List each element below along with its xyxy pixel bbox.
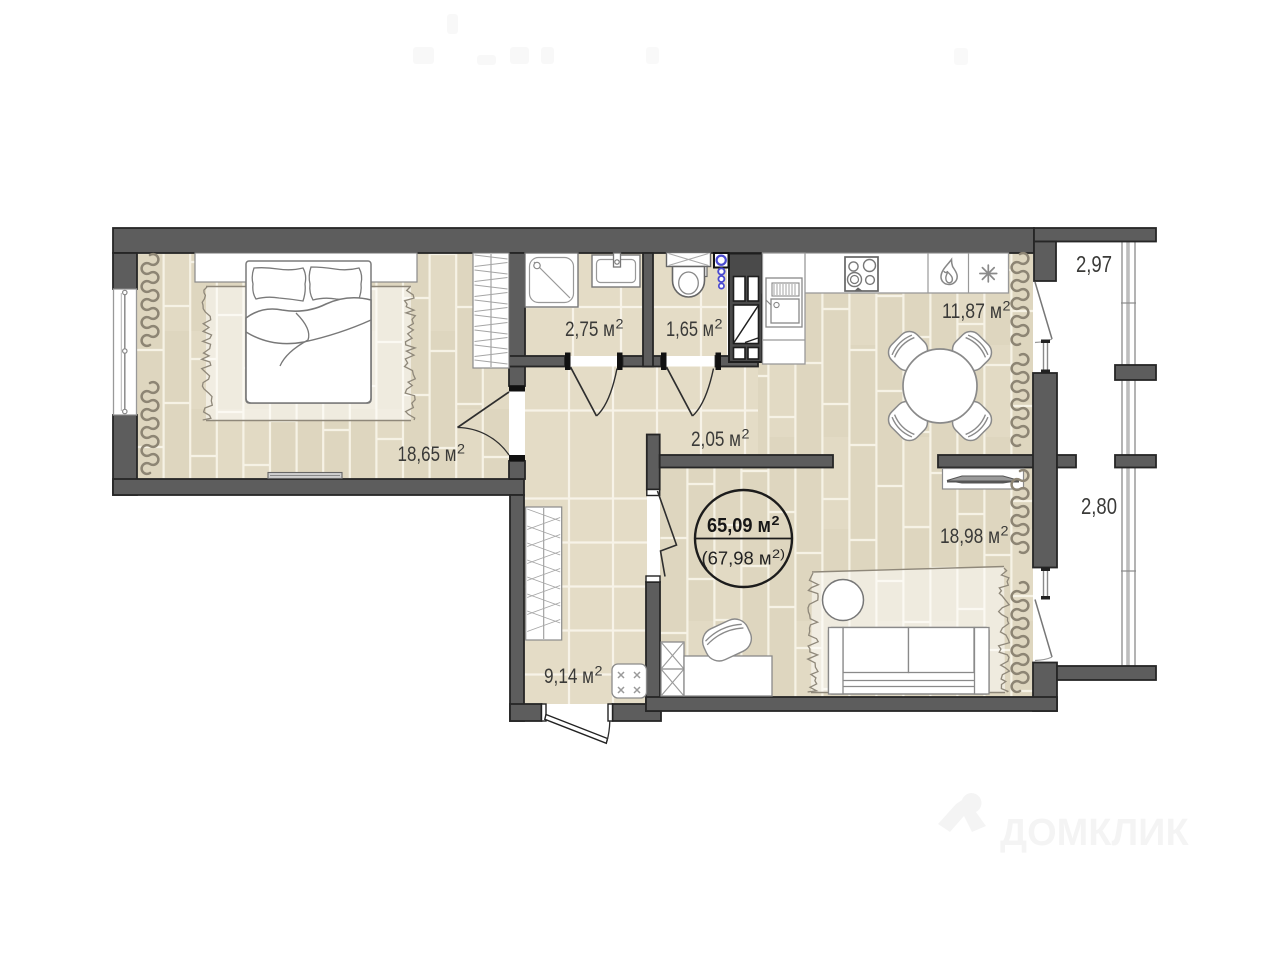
svg-text:(67,98 м: (67,98 м: [702, 548, 772, 569]
svg-text:2: 2: [1003, 298, 1011, 314]
svg-text:2,05 м: 2,05 м: [691, 428, 741, 451]
svg-text:2,80: 2,80: [1081, 493, 1117, 519]
svg-text:2,75 м: 2,75 м: [565, 318, 615, 341]
svg-text:2: 2: [772, 513, 780, 528]
svg-text:2: 2: [742, 426, 750, 442]
svg-text:18,98 м: 18,98 м: [940, 525, 1000, 548]
svg-text:2: 2: [616, 316, 624, 332]
svg-text:11,87 м: 11,87 м: [942, 300, 1002, 323]
svg-text:2: 2: [457, 441, 465, 457]
svg-text:2: 2: [1001, 523, 1009, 539]
svg-text:9,14 м: 9,14 м: [544, 665, 594, 688]
svg-text:2,97: 2,97: [1076, 251, 1112, 277]
svg-text:65,09 м: 65,09 м: [707, 515, 771, 537]
svg-text:ДОМКЛИК: ДОМКЛИК: [1000, 812, 1189, 854]
svg-text:18,65 м: 18,65 м: [398, 443, 457, 466]
svg-text:2: 2: [595, 663, 603, 679]
svg-text:2: 2: [715, 316, 723, 332]
svg-text:2): 2): [772, 547, 785, 561]
svg-text:1,65 м: 1,65 м: [666, 318, 714, 341]
